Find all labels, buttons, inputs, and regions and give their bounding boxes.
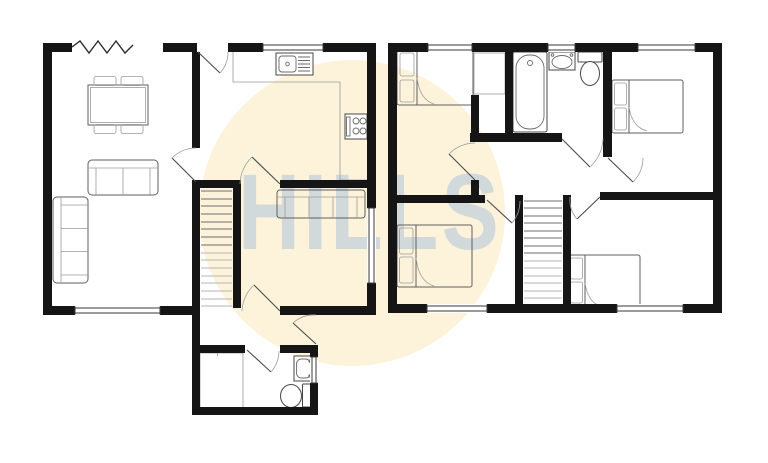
wall-segment (163, 43, 197, 52)
window-bedroom2 (638, 43, 695, 52)
wall-segment (192, 407, 318, 415)
wall-segment (713, 43, 722, 313)
wall-segment (505, 52, 513, 135)
wall-segment (683, 304, 722, 313)
wall-segment (43, 306, 75, 315)
wall-segment (397, 195, 485, 203)
wall-segment (603, 45, 612, 157)
wall-segment (388, 304, 427, 313)
door-front (198, 52, 228, 73)
sofa-two-seat (88, 160, 158, 195)
floorplan-svg: HILLS (0, 0, 768, 463)
wall-segment (487, 304, 617, 313)
party-wall-zigzag (72, 41, 133, 53)
dining-table (88, 77, 148, 134)
window-kitchen (263, 43, 323, 52)
window-bedroom3 (427, 304, 487, 313)
door-bedroom2 (608, 158, 643, 182)
wall-segment (233, 188, 241, 308)
window-living-room (75, 306, 160, 315)
airing-cupboard (474, 53, 505, 94)
wall-segment (388, 45, 397, 313)
wall-segment (192, 180, 241, 188)
wall-segment (280, 180, 376, 188)
hob (345, 114, 367, 139)
dining-chair (121, 77, 143, 86)
window-wc (310, 357, 318, 383)
door-bathroom (562, 139, 603, 167)
wc-toilet (281, 384, 314, 408)
wall-segment (471, 180, 479, 195)
wall-segment (200, 345, 245, 353)
wall-segment (472, 43, 548, 52)
bathroom-toilet (578, 52, 602, 86)
dining-chair (94, 125, 116, 134)
window-bathroom (548, 43, 575, 52)
door-wc (247, 350, 279, 372)
floorplan-page: HILLS (0, 0, 768, 463)
staircase-first (524, 201, 562, 305)
sofa-three-seat (53, 197, 88, 283)
wall-segment (470, 133, 562, 142)
window-sitting-room (367, 208, 376, 283)
wall-segment (43, 43, 72, 52)
door-living-kitchen (172, 148, 196, 182)
dining-chair (94, 77, 116, 86)
wall-segment (563, 195, 571, 307)
wall-segment (192, 182, 200, 415)
door-bedroom4 (570, 197, 600, 219)
wall-segment (388, 43, 428, 52)
wall-segment (228, 43, 263, 52)
wall-segment (43, 43, 52, 315)
wall-segment (310, 345, 318, 357)
wall-segment (192, 52, 200, 148)
kitchen-sink (276, 53, 313, 75)
window-bedroom4 (617, 304, 683, 313)
dining-chair (121, 125, 143, 134)
storage-cupboard (200, 350, 243, 413)
window-bedroom1 (428, 43, 472, 52)
wall-segment (280, 306, 376, 315)
wall-segment (600, 192, 716, 200)
bed-2 (612, 80, 683, 133)
wall-segment (160, 306, 197, 315)
bathtub (513, 52, 547, 132)
bed-4 (568, 255, 640, 307)
wall-segment (515, 195, 523, 307)
bathroom-basin (549, 52, 575, 70)
watermark: HILLS (199, 60, 505, 366)
